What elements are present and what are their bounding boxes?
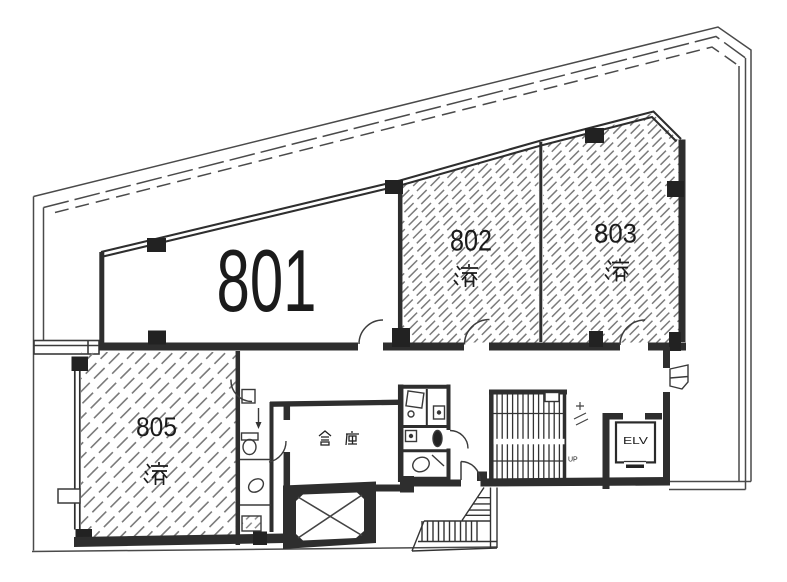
svg-text:UP: UP: [568, 457, 578, 464]
svg-text:803: 803: [594, 219, 637, 249]
svg-text:802: 802: [450, 225, 492, 258]
svg-text:805: 805: [136, 412, 177, 442]
svg-text:801: 801: [217, 231, 317, 330]
svg-text:ELV: ELV: [623, 435, 648, 447]
